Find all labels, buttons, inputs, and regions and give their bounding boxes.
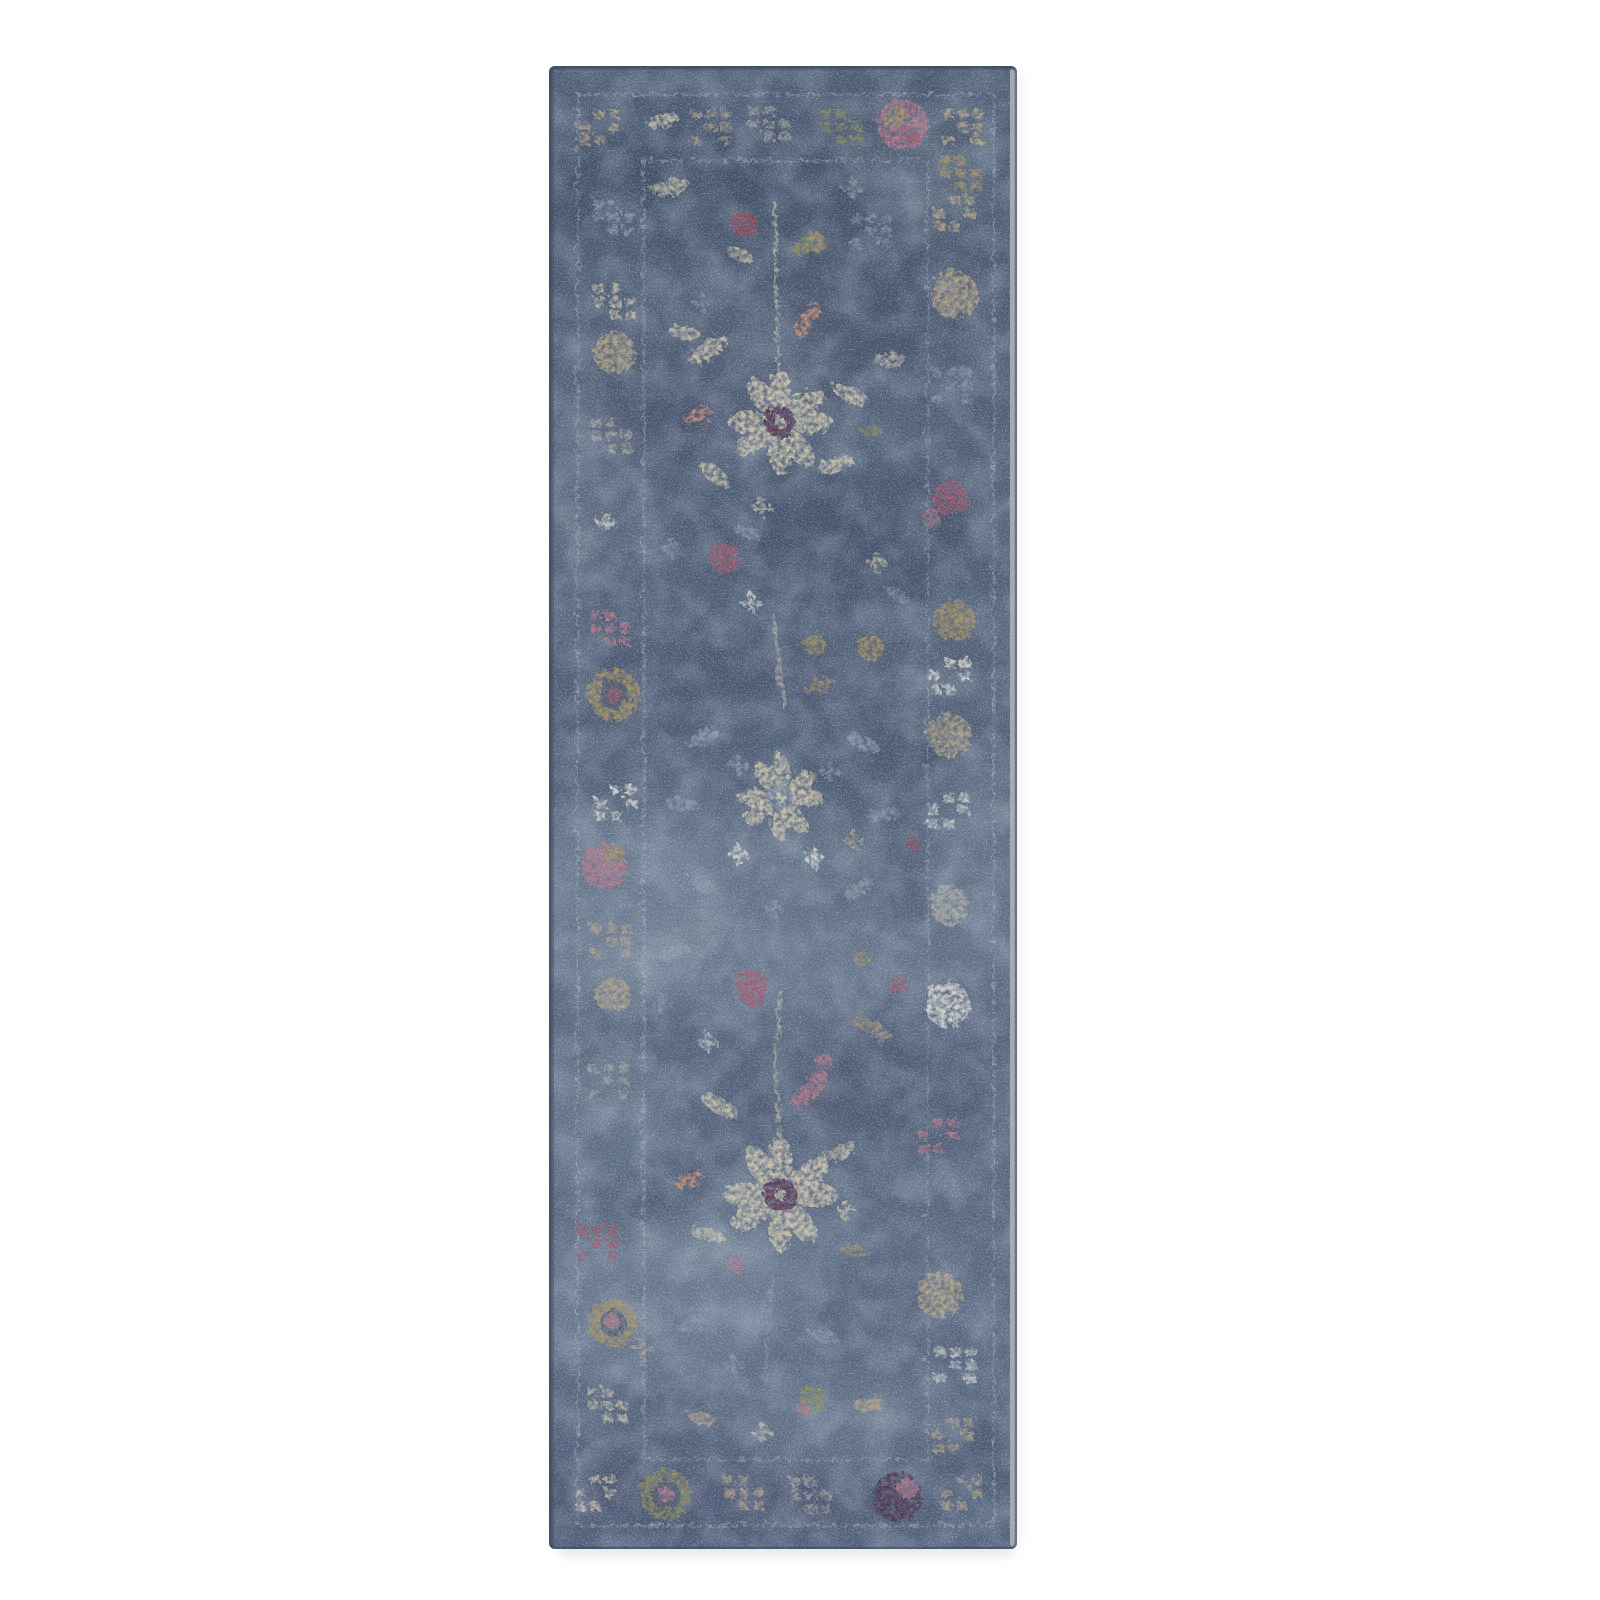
product-photo (0, 0, 1600, 1600)
photo-canvas: Product photo of a vintage-style distres… (0, 0, 1600, 1600)
rug-product-image: Product photo of a vintage-style distres… (0, 0, 1600, 1600)
rug-pile-speckle (549, 66, 1017, 1549)
rug (505, 66, 1030, 1549)
